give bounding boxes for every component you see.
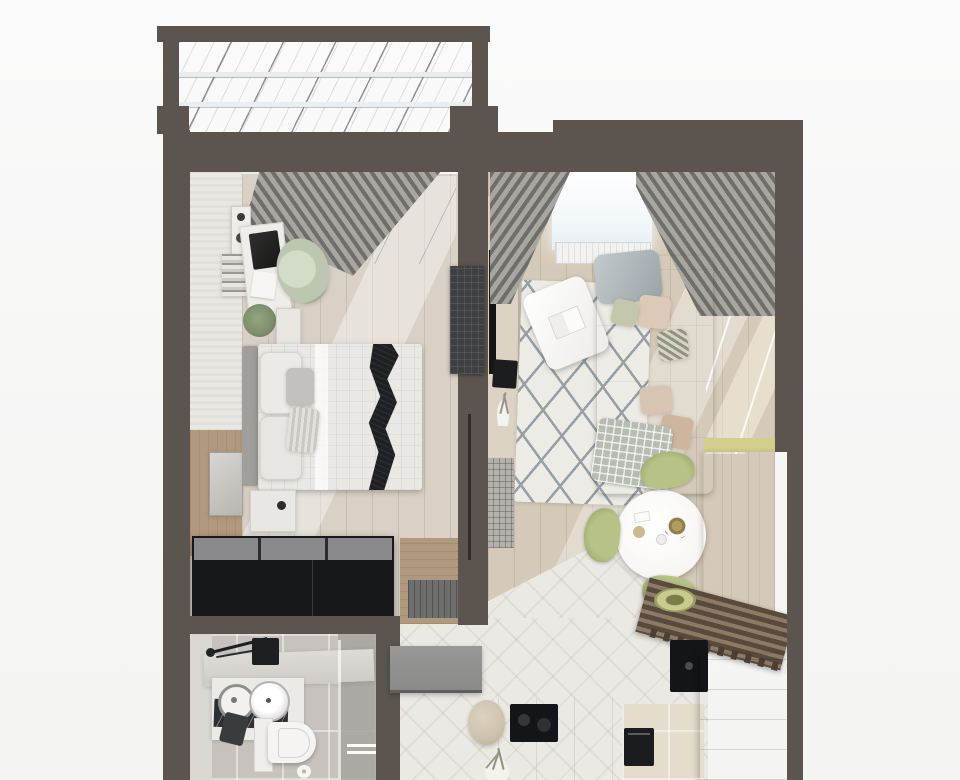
sofa-cushion <box>636 294 672 330</box>
toilet-seat-line <box>278 728 310 758</box>
panel-knob <box>685 662 693 670</box>
black-wardrobe <box>192 536 394 624</box>
dining-table <box>616 490 706 580</box>
wall-pillar-mid <box>450 106 498 134</box>
vase-with-branches <box>477 748 517 780</box>
cooktop <box>510 704 558 742</box>
drain-bar <box>347 751 377 754</box>
wardrobe-top-panel <box>194 538 392 560</box>
balcony-roof-beam <box>178 102 472 107</box>
bed-pillow-gray <box>286 368 314 406</box>
bedroom-wall-tv-grid <box>450 266 484 374</box>
bath-black-box <box>252 638 279 665</box>
sink-drain <box>266 698 271 703</box>
wall-right-upper <box>775 130 803 452</box>
nightstand-lamp <box>277 501 286 510</box>
burner <box>537 718 551 732</box>
desk-papers <box>250 270 277 299</box>
bed-pillow-knit <box>286 407 320 454</box>
toilet-paper <box>297 765 311 778</box>
sofa-cushion-striped <box>656 328 690 362</box>
wall-right-lower <box>787 450 803 780</box>
drain-bar <box>347 744 377 747</box>
book <box>548 306 587 340</box>
floor-grille <box>487 458 514 548</box>
oven-front <box>624 728 654 766</box>
wall-bathroom-right <box>376 616 400 780</box>
sofa-cushion-sage <box>610 298 641 329</box>
nightstand <box>250 490 296 532</box>
yellow-accent-strip <box>704 438 775 452</box>
wall-middle <box>458 168 488 625</box>
balcony-glass-roof <box>178 42 472 134</box>
glass-screen <box>338 640 341 780</box>
round-sink <box>249 681 290 722</box>
speaker-cone <box>237 213 245 221</box>
twig-vase <box>494 392 512 426</box>
green-bowl <box>654 588 696 612</box>
bed-headboard <box>242 346 258 486</box>
table-plate <box>633 526 645 538</box>
wall-top-main <box>163 132 803 172</box>
balcony-wall-top <box>157 26 490 42</box>
balcony-roof-beam <box>178 72 472 77</box>
open-door-leaf <box>390 646 482 693</box>
oven-handle <box>628 733 650 735</box>
floorplan-canvas <box>0 0 960 780</box>
wardrobe-seam <box>312 560 313 622</box>
toilet-bowl <box>268 722 316 763</box>
table-glass <box>656 534 667 545</box>
floor-drain <box>347 744 377 755</box>
wall-trim-line <box>468 414 471 560</box>
sofa-cushion <box>639 385 673 415</box>
kitchen-drawer-unit <box>700 654 788 780</box>
shower-head <box>206 648 215 657</box>
twig <box>503 394 509 414</box>
media-black-box <box>492 359 518 389</box>
mirror <box>209 452 243 516</box>
burner <box>518 714 530 726</box>
wall-left <box>163 130 190 780</box>
wall-bathroom-top <box>163 616 400 634</box>
branch <box>497 748 504 770</box>
washer-hub <box>231 697 237 703</box>
wall-top-right-ledge <box>553 120 803 134</box>
plant <box>243 304 276 337</box>
pouf <box>468 700 505 745</box>
table-card <box>633 511 650 524</box>
door-mat <box>408 580 460 618</box>
